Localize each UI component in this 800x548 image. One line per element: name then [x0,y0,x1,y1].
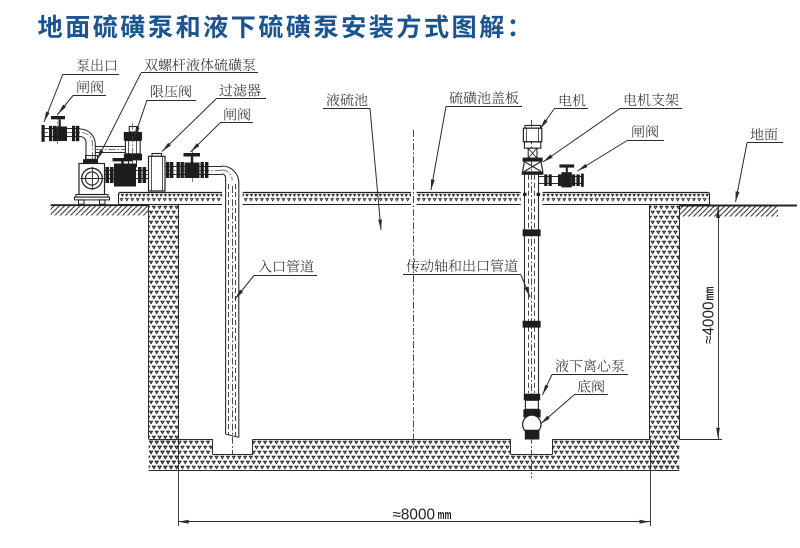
svg-text:mm: mm [438,508,452,522]
svg-text:mm: mm [703,287,717,301]
svg-text:≈8000: ≈8000 [393,507,436,524]
svg-text:≈4000: ≈4000 [701,301,718,344]
